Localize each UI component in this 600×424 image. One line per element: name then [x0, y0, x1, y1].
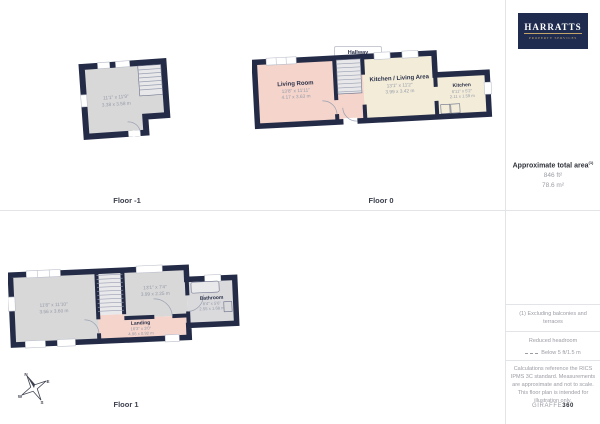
window-icon: [97, 62, 109, 69]
floor-minus1-label: Floor -1: [113, 196, 141, 205]
agency-logo-name: HARRATTS: [524, 22, 581, 34]
window-icon: [402, 50, 418, 58]
giraffe360-logo: GIRAFFE360: [506, 403, 600, 409]
window-icon: [57, 339, 75, 347]
bedroom-left-dims-ft: 11'8" x 11'10": [39, 302, 68, 309]
footnote-text: (1) Excluding balconies and terraces: [510, 311, 596, 327]
window-icon: [115, 61, 129, 68]
floorplan-page: 11'1" x 11'9" 3.38 x 3.58 m Floor -1 Hal…: [0, 0, 600, 424]
sidebar-section-divider: [506, 360, 600, 361]
total-area-ft: 846 ft²: [506, 172, 600, 179]
reduced-headroom-block: Reduced headroom Below 5 ft/1.5 m: [510, 338, 596, 358]
disclaimer-text: Calculations reference the RICS IPMS 3C …: [510, 366, 596, 406]
window-icon: [8, 297, 15, 311]
window-icon: [25, 340, 45, 348]
window-icon: [484, 82, 492, 94]
floor-minus1-plan: 11'1" x 11'9" 3.38 x 3.58 m: [76, 56, 186, 156]
window-icon: [81, 95, 88, 107]
total-area-block: Approximate total area(1) 846 ft² 78.6 m…: [506, 160, 600, 189]
stairs-floor: [96, 270, 124, 315]
floor0-plan: Living Room 13'8" x 11'11" 4.17 x 3.63 m…: [252, 48, 502, 158]
agency-logo: HARRATTS PROPERTY SERVICES: [518, 13, 588, 49]
window-icon: [266, 57, 296, 66]
reduced-headroom-row: Below 5 ft/1.5 m: [510, 350, 596, 358]
door-gap: [343, 118, 357, 126]
floor1-label: Floor 1: [113, 400, 138, 409]
door-gap: [128, 130, 140, 137]
total-area-title: Approximate total area(1): [506, 160, 600, 169]
agency-logo-tagline: PROPERTY SERVICES: [529, 36, 577, 40]
window-icon: [136, 265, 162, 273]
bedroom-right-dims-ft: 13'1" x 7'4": [143, 284, 167, 291]
reduced-headroom-value: Below 5 ft/1.5 m: [541, 350, 580, 358]
compass-e: E: [46, 379, 49, 384]
compass-rose: N E S W: [14, 368, 54, 408]
sidebar-section-divider: [506, 331, 600, 332]
total-area-title-text: Approximate total area: [513, 162, 589, 169]
info-sidebar: HARRATTS PROPERTY SERVICES Approximate t…: [506, 0, 600, 424]
compass-n: N: [24, 372, 27, 377]
bathtub-icon: [191, 281, 219, 293]
giraffe360-logo-bold: 360: [562, 403, 574, 409]
window-icon: [26, 269, 60, 277]
total-area-footnote-marker: (1): [588, 160, 593, 165]
compass-star-icon: [15, 369, 53, 407]
dashed-line-icon: [525, 353, 538, 354]
total-area-m: 78.6 m²: [506, 182, 600, 189]
window-icon: [205, 274, 221, 282]
stairs-icon: [336, 59, 362, 94]
sidebar-section-divider: [506, 304, 600, 305]
giraffe360-logo-gray: GIRAFFE: [532, 403, 562, 409]
floor1-plan: 11'8" x 11'10" 3.56 x 3.60 m 13'1" x 7'4…: [8, 262, 248, 367]
stairs-icon: [138, 64, 163, 96]
compass-s: S: [40, 400, 43, 405]
reduced-headroom-title: Reduced headroom: [510, 338, 596, 346]
window-icon: [374, 52, 390, 60]
window-icon: [165, 334, 179, 342]
floor0-label: Floor 0: [368, 196, 393, 205]
